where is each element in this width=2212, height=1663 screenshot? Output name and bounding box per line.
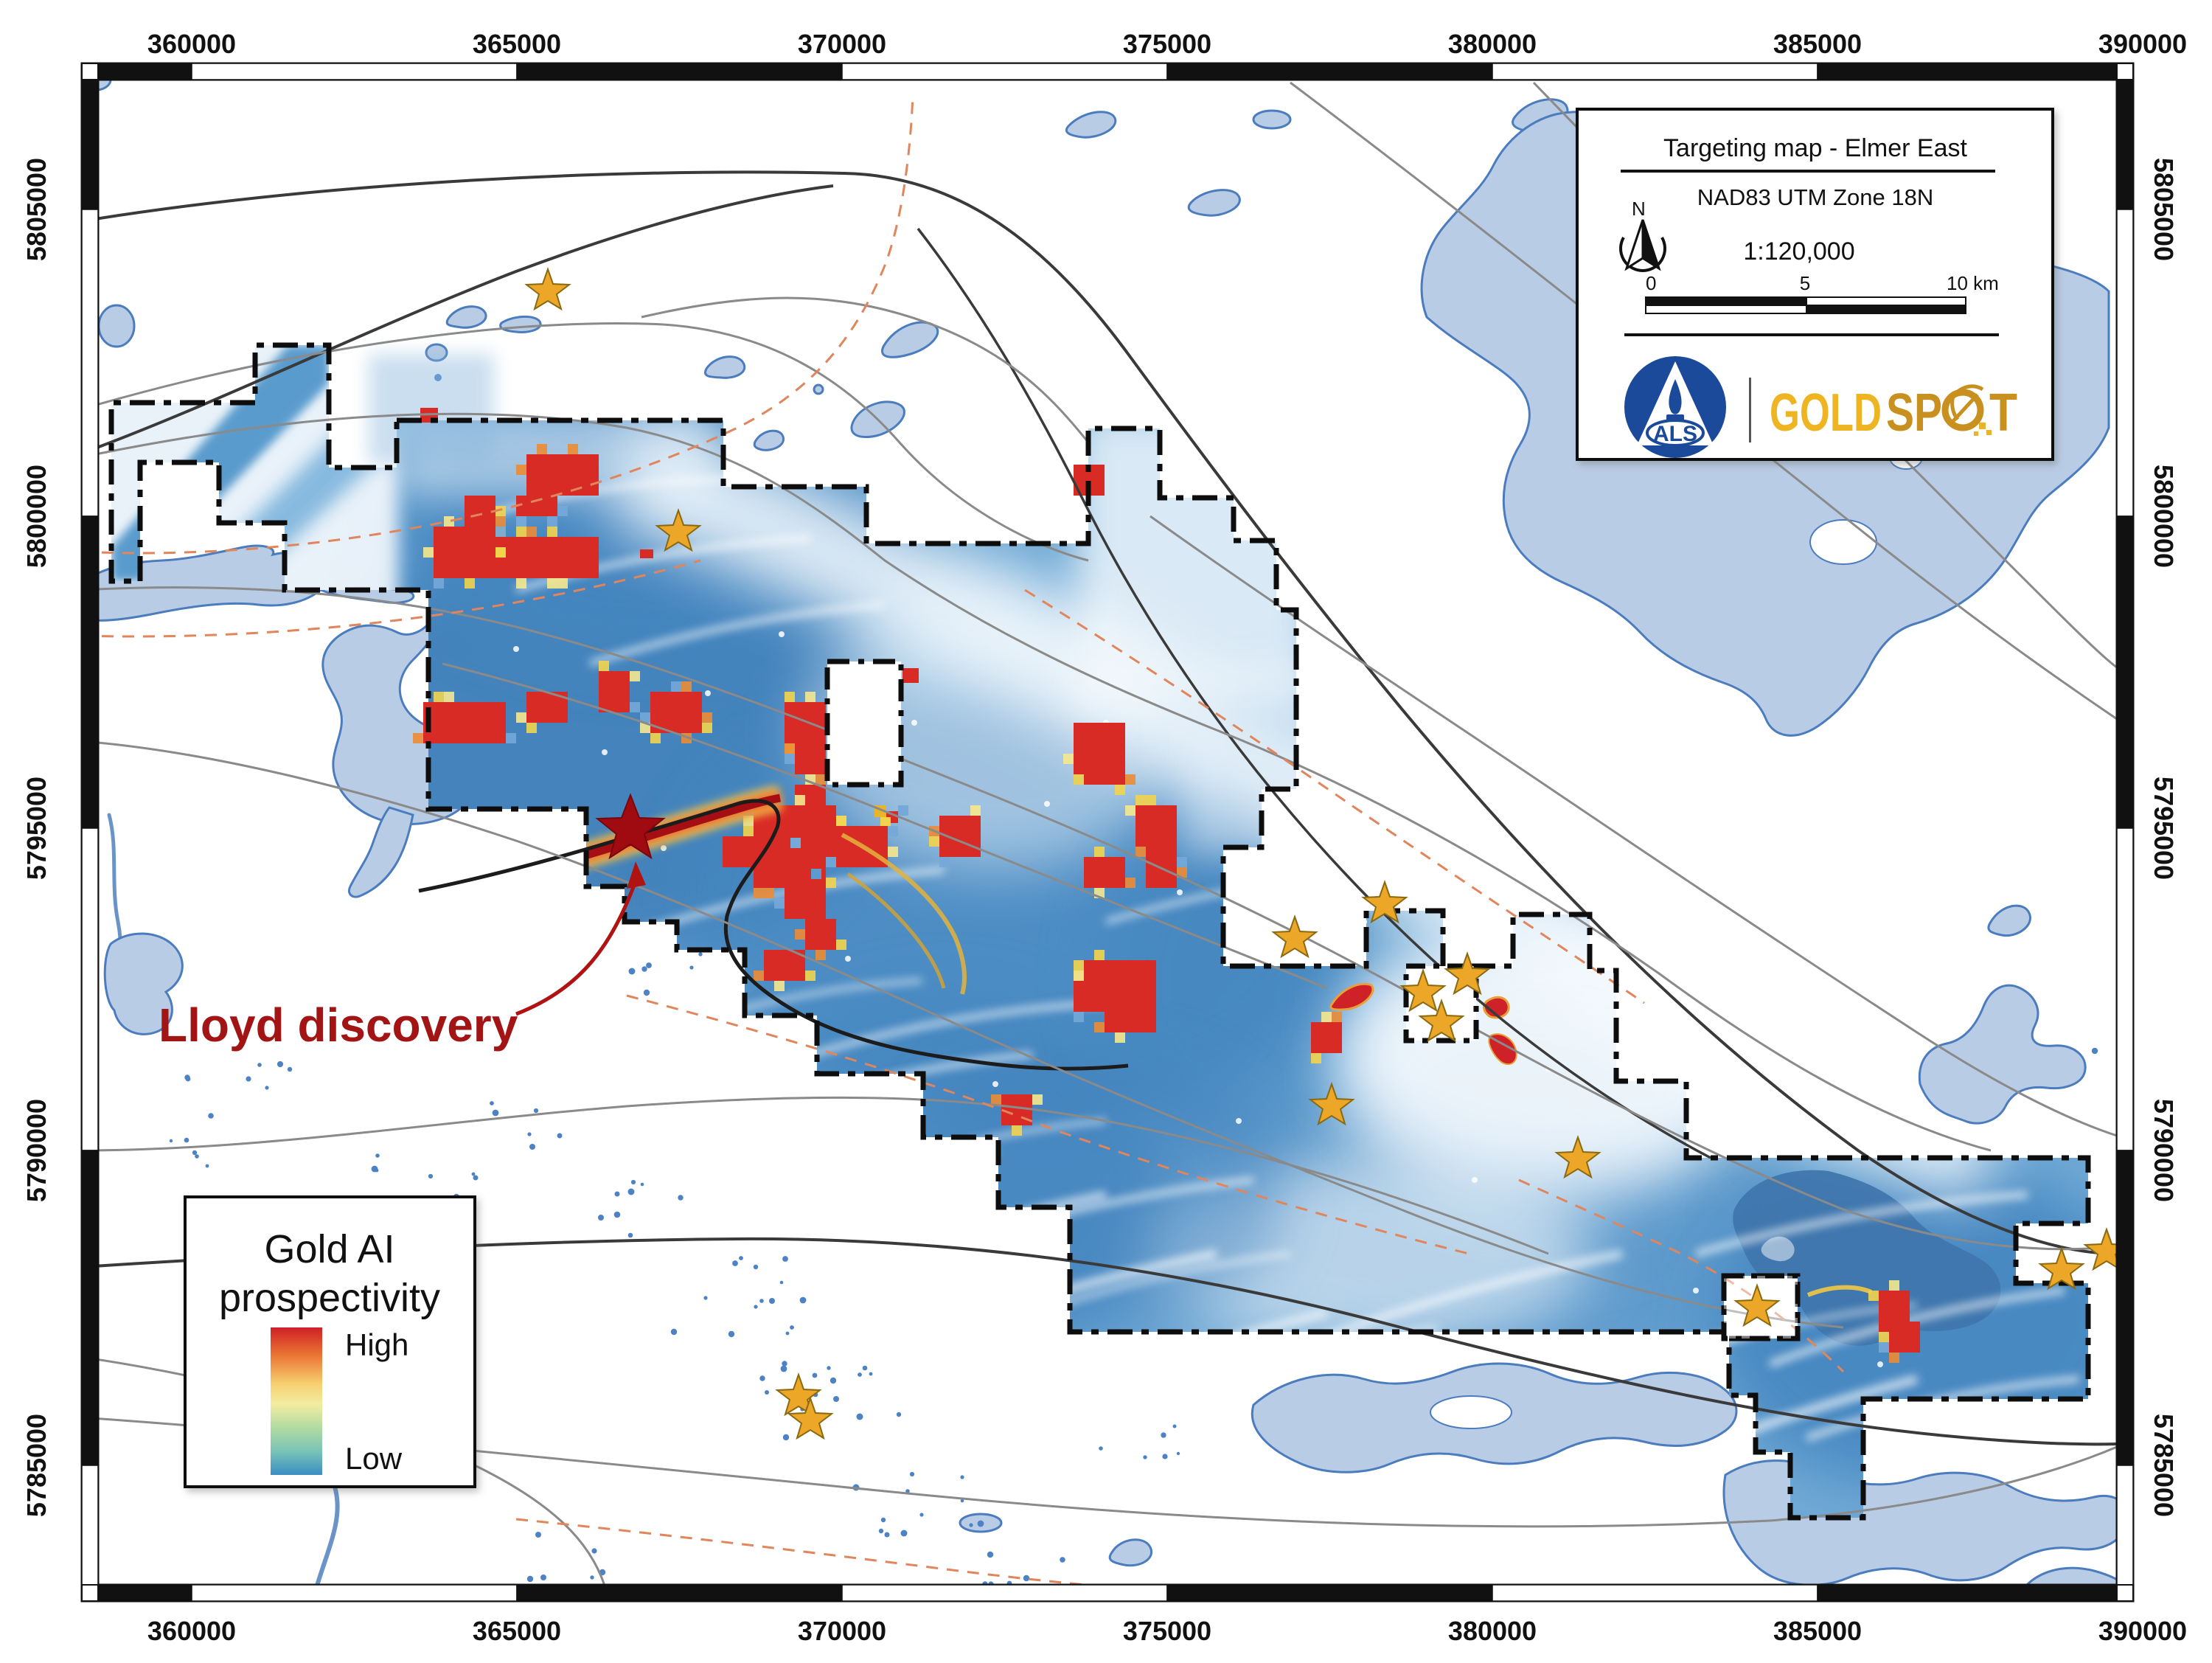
svg-text:375000: 375000 — [1123, 29, 1211, 59]
svg-text:5795000: 5795000 — [21, 777, 52, 880]
svg-text:1:120,000: 1:120,000 — [1743, 237, 1854, 265]
svg-text:370000: 370000 — [798, 1616, 886, 1646]
svg-text:10 km: 10 km — [1947, 272, 1999, 294]
svg-text:380000: 380000 — [1448, 1616, 1537, 1646]
svg-text:390000: 390000 — [2098, 29, 2187, 59]
svg-text:NAD83 UTM Zone 18N: NAD83 UTM Zone 18N — [1697, 184, 1933, 210]
svg-text:SP: SP — [1886, 383, 1942, 442]
svg-text:370000: 370000 — [798, 29, 886, 59]
svg-text:360000: 360000 — [147, 29, 236, 59]
svg-text:GOLD: GOLD — [1770, 383, 1882, 442]
svg-text:Lloyd discovery: Lloyd discovery — [159, 999, 518, 1052]
svg-text:High: High — [345, 1327, 408, 1362]
svg-text:360000: 360000 — [147, 1616, 236, 1646]
svg-text:0: 0 — [1646, 272, 1656, 294]
svg-text:5800000: 5800000 — [21, 465, 52, 568]
svg-text:5: 5 — [1800, 272, 1810, 294]
svg-text:380000: 380000 — [1448, 29, 1537, 59]
svg-text:365000: 365000 — [473, 1616, 561, 1646]
svg-text:Gold AI: Gold AI — [264, 1227, 394, 1271]
svg-text:385000: 385000 — [1773, 29, 1862, 59]
svg-text:5800000: 5800000 — [2149, 465, 2179, 568]
svg-text:5785000: 5785000 — [2149, 1414, 2179, 1517]
svg-text:prospectivity: prospectivity — [219, 1276, 440, 1320]
svg-text:5805000: 5805000 — [2149, 158, 2179, 261]
svg-text:N: N — [1632, 198, 1646, 220]
svg-text:390000: 390000 — [2098, 1616, 2187, 1646]
svg-text:Low: Low — [345, 1441, 403, 1476]
svg-text:5790000: 5790000 — [21, 1099, 52, 1202]
svg-text:385000: 385000 — [1773, 1616, 1862, 1646]
svg-text:5795000: 5795000 — [2149, 777, 2179, 880]
svg-text:5785000: 5785000 — [21, 1414, 52, 1517]
svg-text:5790000: 5790000 — [2149, 1099, 2179, 1202]
svg-text:ALS: ALS — [1653, 422, 1697, 446]
svg-text:Targeting map - Elmer East: Targeting map - Elmer East — [1663, 134, 1967, 162]
svg-text:T: T — [1989, 383, 2017, 442]
svg-text:375000: 375000 — [1123, 1616, 1211, 1646]
svg-text:5805000: 5805000 — [21, 158, 52, 261]
svg-text:365000: 365000 — [473, 29, 561, 59]
